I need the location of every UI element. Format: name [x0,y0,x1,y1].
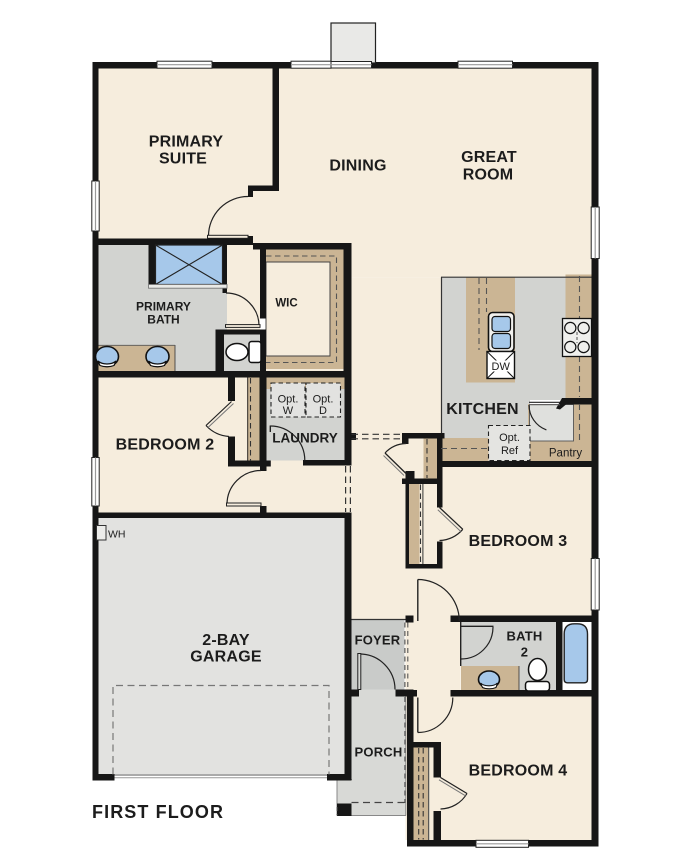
svg-text:WH: WH [108,529,126,541]
svg-text:2-BAY: 2-BAY [202,632,250,649]
svg-text:DW: DW [492,361,511,373]
svg-text:BEDROOM 3: BEDROOM 3 [469,533,568,550]
svg-text:Opt.: Opt. [278,394,299,406]
svg-text:DINING: DINING [329,158,386,175]
svg-text:ROOM: ROOM [463,167,514,184]
svg-text:2: 2 [521,645,528,660]
svg-text:Opt.: Opt. [499,432,520,444]
svg-text:PRIMARY: PRIMARY [149,134,224,151]
svg-text:Ref: Ref [501,445,519,457]
svg-text:W: W [283,405,294,417]
svg-text:PRIMARY: PRIMARY [136,300,191,314]
svg-text:WIC: WIC [275,298,297,310]
svg-text:KITCHEN: KITCHEN [446,401,519,418]
svg-text:BATH: BATH [507,629,543,644]
svg-text:PORCH: PORCH [355,745,403,760]
svg-text:FIRST FLOOR: FIRST FLOOR [92,802,224,822]
svg-text:BEDROOM 2: BEDROOM 2 [116,437,215,454]
svg-text:Opt.: Opt. [313,394,334,406]
svg-text:D: D [319,405,327,417]
svg-text:FOYER: FOYER [355,633,401,648]
svg-text:GREAT: GREAT [461,149,517,166]
svg-text:Pantry: Pantry [549,448,582,460]
svg-text:LAUNDRY: LAUNDRY [272,431,338,446]
svg-text:BATH: BATH [147,313,179,327]
svg-text:SUITE: SUITE [159,151,207,168]
svg-text:BEDROOM 4: BEDROOM 4 [469,763,568,780]
svg-text:GARAGE: GARAGE [190,649,262,666]
